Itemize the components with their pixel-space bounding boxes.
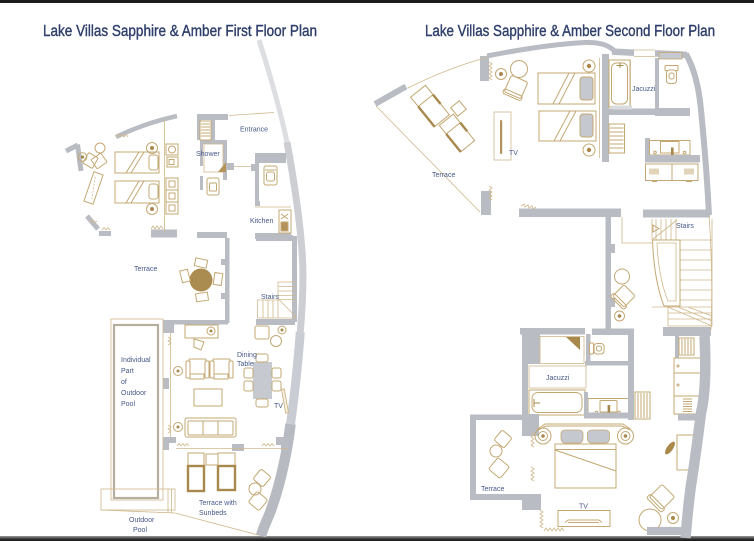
svg-text:Stairs: Stairs (676, 223, 694, 230)
svg-text:Kitchen: Kitchen (250, 218, 273, 225)
svg-text:Table: Table (237, 361, 254, 368)
svg-text:Terrace: Terrace (432, 172, 455, 179)
svg-text:of: of (121, 379, 127, 386)
svg-text:Outdoor: Outdoor (129, 517, 155, 524)
svg-text:Terrace: Terrace (134, 266, 157, 273)
svg-text:Entrance: Entrance (240, 127, 268, 134)
svg-text:Lake Villas Sapphire & Amber S: Lake Villas Sapphire & Amber Second Floo… (425, 23, 715, 40)
svg-text:Individual: Individual (121, 357, 151, 364)
svg-text:Pool: Pool (121, 401, 135, 408)
svg-text:Part: Part (121, 368, 134, 375)
svg-text:TV: TV (509, 150, 518, 157)
svg-text:Lake Villas Sapphire & Amber F: Lake Villas Sapphire & Amber First Floor… (43, 23, 317, 40)
svg-text:Pool: Pool (133, 527, 147, 534)
svg-text:Jacuzzi: Jacuzzi (632, 86, 656, 93)
svg-text:Terrace: Terrace (481, 486, 504, 493)
svg-text:TV: TV (579, 504, 588, 511)
svg-text:Jacuzzi: Jacuzzi (546, 375, 570, 382)
svg-text:Stairs: Stairs (261, 294, 279, 301)
svg-text:TV: TV (274, 403, 283, 410)
svg-text:Sunbeds: Sunbeds (199, 510, 227, 517)
svg-text:Dining: Dining (237, 352, 257, 359)
svg-text:Shower: Shower (196, 151, 220, 158)
svg-text:Terrace with: Terrace with (199, 500, 237, 507)
svg-text:Outdoor: Outdoor (121, 390, 147, 397)
